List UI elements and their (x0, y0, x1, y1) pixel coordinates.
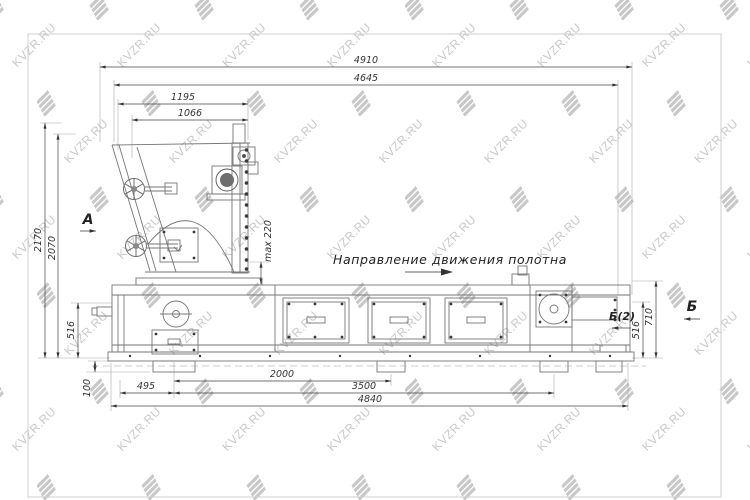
dim-max-220: max 220 (263, 220, 274, 262)
drawing-sheet: KVZR.RUKVZR.RUKVZR.RUKVZR.RUKVZR.RUKVZR.… (0, 0, 750, 500)
machine-foot (540, 361, 568, 372)
inspection-panel (445, 298, 507, 343)
dim-100: 100 (82, 379, 93, 397)
dim-516-right: 516 (631, 321, 642, 339)
direction-label: Направление движения полотна (333, 252, 567, 267)
dim-4645: 4645 (354, 73, 378, 84)
inspection-panel (152, 330, 198, 354)
handwheel-icon (126, 236, 147, 257)
dim-710: 710 (644, 308, 655, 326)
duct (512, 274, 529, 285)
view-label-b: Б (687, 299, 698, 315)
drive-shaft (97, 307, 112, 316)
machine-foot (596, 361, 622, 372)
dim-4840: 4840 (358, 394, 382, 405)
dim-1066: 1066 (178, 108, 202, 119)
view-label-a: А (82, 212, 94, 228)
handwheel-icon (124, 179, 145, 200)
dim-2000: 2000 (270, 369, 294, 380)
dim-2070: 2070 (47, 236, 58, 260)
inspection-panel (368, 298, 430, 343)
dim-3500: 3500 (352, 381, 376, 392)
dim-2170: 2170 (33, 228, 44, 252)
machine-foot (377, 361, 405, 372)
head-panel (160, 228, 198, 262)
dim-495: 495 (137, 381, 155, 392)
dim-516-left: 516 (66, 321, 77, 339)
dim-4910: 4910 (354, 55, 378, 66)
dim-1195: 1195 (171, 92, 195, 103)
machine-drawing: Направление движения полотна А Б Б(2) 49… (0, 0, 750, 500)
direction-arrow-icon (405, 269, 453, 276)
machine-body (92, 266, 646, 372)
head-unit (112, 124, 262, 285)
dimension-lines (45, 67, 656, 406)
